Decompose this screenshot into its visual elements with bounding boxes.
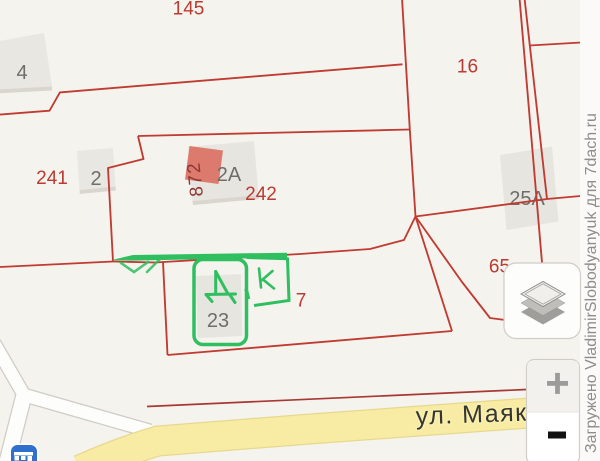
svg-text:16: 16 (457, 57, 478, 78)
svg-text:145: 145 (173, 0, 205, 20)
svg-text:4: 4 (16, 62, 27, 84)
svg-text:872: 872 (182, 161, 207, 198)
svg-text:2: 2 (90, 168, 101, 190)
svg-text:2A: 2A (217, 164, 242, 186)
svg-text:Загружено VladimirSlobodyanyuk: Загружено VladimirSlobodyanyuk для 7dach… (583, 113, 600, 453)
svg-text:23: 23 (207, 310, 229, 332)
svg-text:7: 7 (296, 291, 307, 312)
svg-text:241: 241 (36, 168, 68, 189)
svg-text:242: 242 (245, 184, 277, 205)
